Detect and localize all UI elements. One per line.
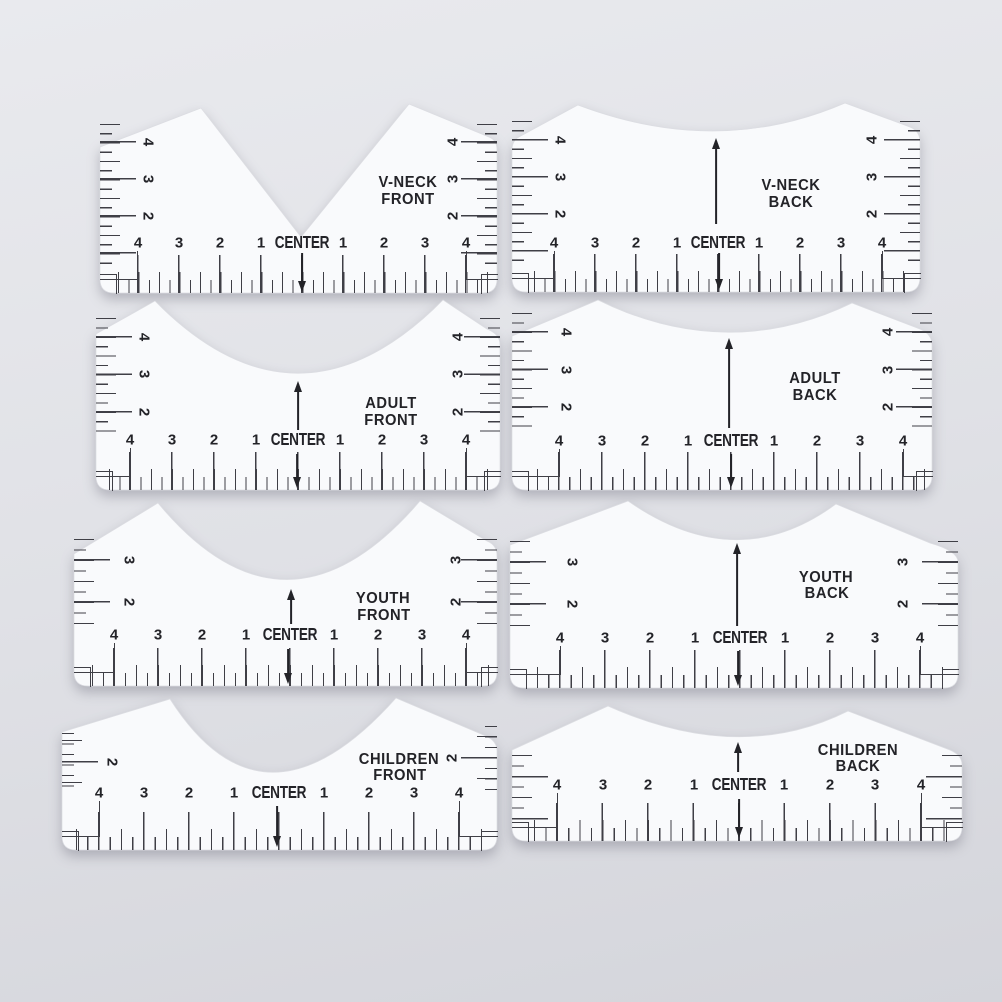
v-neck-front-body xyxy=(100,104,497,293)
youth-back-body xyxy=(510,501,958,688)
adult-front-body xyxy=(96,300,500,490)
product-photo-tshirt-ruler-set: 4 3 2 1 1 2 3 4 CENTER 4 3 2 4 3 2 V-NEC… xyxy=(0,0,1002,1002)
youth-front-body xyxy=(74,501,497,686)
v-neck-back-body xyxy=(512,103,920,292)
ruler-bodies xyxy=(0,0,1002,1002)
children-front-body xyxy=(62,698,497,850)
children-back-body xyxy=(512,706,962,841)
adult-back-body xyxy=(512,300,932,490)
